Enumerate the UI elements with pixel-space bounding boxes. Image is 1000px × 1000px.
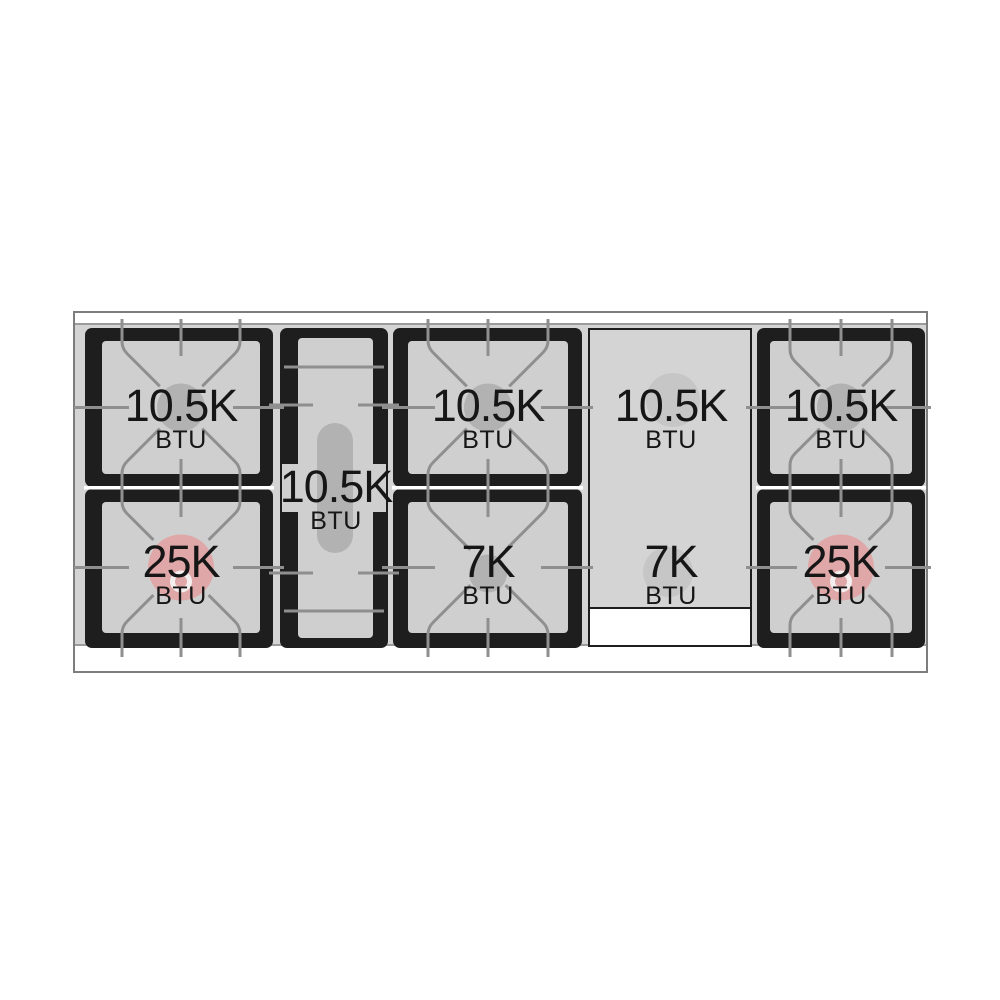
burner-btu-unit: BTU bbox=[461, 584, 514, 608]
burner-btu-unit: BTU bbox=[125, 428, 238, 452]
cooktop-outline bbox=[73, 311, 928, 673]
burner-btu-value: 7K bbox=[461, 540, 514, 584]
burner-label-griddle-top: 10.5K BTU bbox=[615, 384, 728, 452]
burner-btu-value: 10.5K bbox=[125, 384, 238, 428]
burner-btu-unit: BTU bbox=[280, 509, 393, 533]
burner-label-right-bottom: 25K BTU bbox=[802, 540, 879, 608]
burner-label-left-bottom: 25K BTU bbox=[142, 540, 219, 608]
burner-label-middle-bottom: 7K BTU bbox=[461, 540, 514, 608]
burner-btu-value: 10.5K bbox=[785, 384, 898, 428]
burner-btu-unit: BTU bbox=[432, 428, 545, 452]
burner-btu-value: 7K bbox=[644, 540, 697, 584]
burner-btu-value: 25K bbox=[802, 540, 879, 584]
burner-btu-unit: BTU bbox=[142, 584, 219, 608]
burner-btu-value: 25K bbox=[142, 540, 219, 584]
range-cooktop-diagram: 10.5K BTU 25K BTU 10.5K BTU 10.5K BTU 7K… bbox=[0, 0, 1000, 1000]
griddle-drip-tray bbox=[588, 607, 752, 647]
burner-label-griddle-bottom: 7K BTU bbox=[644, 540, 697, 608]
burner-btu-unit: BTU bbox=[802, 584, 879, 608]
burner-btu-value: 10.5K bbox=[280, 465, 393, 509]
burner-label-left-top: 10.5K BTU bbox=[125, 384, 238, 452]
front-trim bbox=[75, 644, 926, 671]
burner-label-middle-top: 10.5K BTU bbox=[432, 384, 545, 452]
burner-btu-unit: BTU bbox=[615, 428, 728, 452]
burner-label-right-top: 10.5K BTU bbox=[785, 384, 898, 452]
burner-label-center-oval: 10.5K BTU bbox=[280, 465, 393, 533]
burner-btu-unit: BTU bbox=[644, 584, 697, 608]
burner-btu-unit: BTU bbox=[785, 428, 898, 452]
burner-btu-value: 10.5K bbox=[615, 384, 728, 428]
back-trim bbox=[75, 313, 926, 325]
burner-btu-value: 10.5K bbox=[432, 384, 545, 428]
